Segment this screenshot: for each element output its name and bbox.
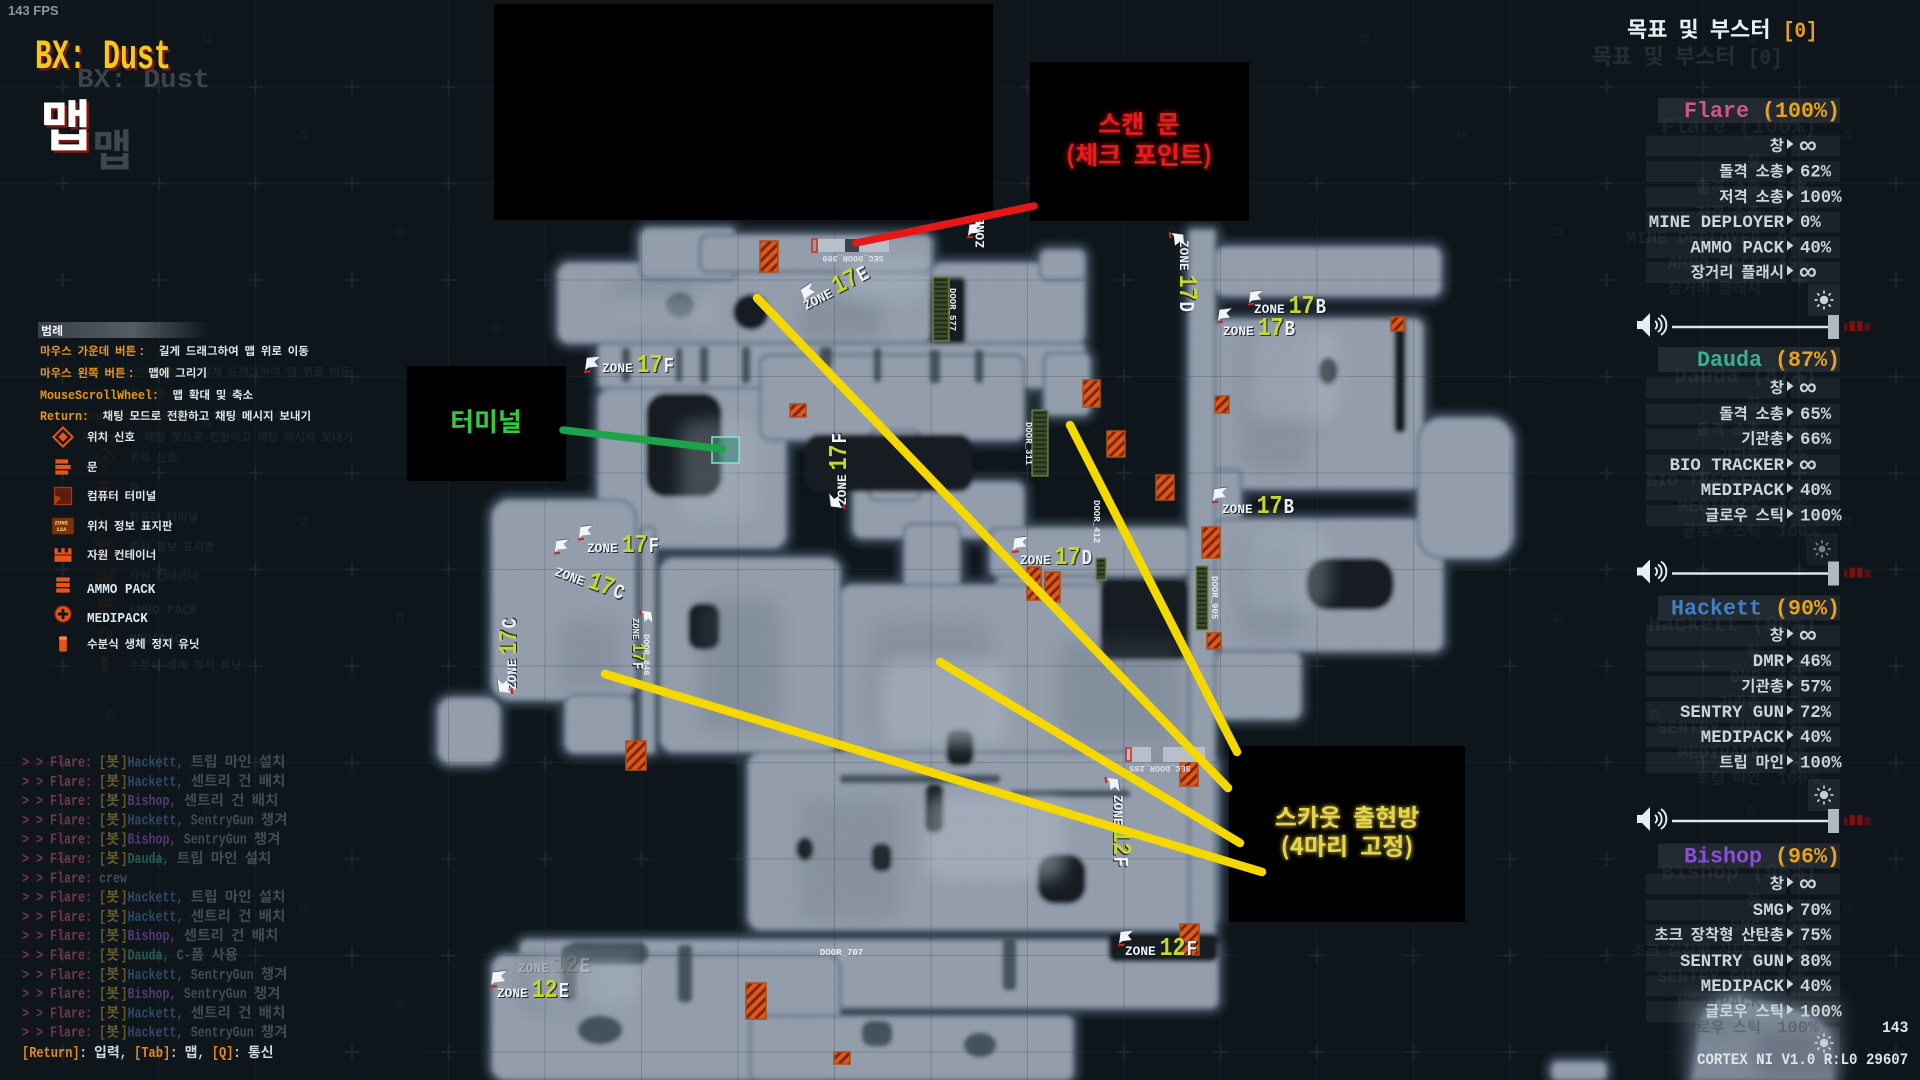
svg-text:Hackett: Hackett <box>128 813 177 829</box>
svg-text::: : <box>233 1046 247 1062</box>
svg-text:,: , <box>177 1006 184 1022</box>
svg-text:∞: ∞ <box>1799 131 1817 159</box>
svg-text:ZONE: ZONE <box>630 618 640 640</box>
svg-text:AMMO PACK: AMMO PACK <box>1690 239 1784 259</box>
svg-text:> > Flare:: > > Flare: <box>22 968 92 984</box>
svg-text:,: , <box>177 968 184 984</box>
svg-text:DOOR_311: DOOR_311 <box>1023 422 1033 466</box>
svg-text:> > Flare:: > > Flare: <box>22 891 92 907</box>
svg-text:> > Flare:: > > Flare: <box>22 929 92 945</box>
svg-text:Bishop: Bishop <box>128 987 170 1003</box>
svg-text:F: F <box>628 662 644 669</box>
svg-text:12A: 12A <box>98 547 109 554</box>
svg-text:F: F <box>664 356 674 379</box>
svg-text:F: F <box>1187 939 1197 962</box>
svg-text:[0]: [0] <box>1748 46 1783 71</box>
svg-text:> > Flare:: > > Flare: <box>22 794 92 810</box>
svg-text:]: ] <box>121 1026 128 1042</box>
svg-text:∞: ∞ <box>1799 373 1817 401</box>
svg-text:]: ] <box>121 968 128 984</box>
svg-text:B: B <box>1285 319 1296 342</box>
svg-text:Bishop: Bishop <box>128 794 170 810</box>
svg-text:E: E <box>559 981 569 1004</box>
svg-text:ZONE: ZONE <box>1110 795 1125 826</box>
svg-text:SENTRY GUN: SENTRY GUN <box>1680 952 1784 972</box>
svg-text:Hackett: Hackett <box>128 910 177 926</box>
svg-text:[: [ <box>99 794 106 810</box>
svg-text:> > Flare:: > > Flare: <box>22 949 92 965</box>
svg-text:,: , <box>177 910 184 926</box>
svg-text:70%: 70% <box>1800 901 1832 921</box>
svg-text:17: 17 <box>627 643 647 661</box>
svg-text:[: [ <box>99 910 106 926</box>
svg-text:AMMO PACK: AMMO PACK <box>87 583 156 598</box>
svg-text:[: [ <box>99 968 106 984</box>
svg-text:> > Flare:: > > Flare: <box>22 775 92 791</box>
svg-text:17: 17 <box>622 530 648 560</box>
svg-text::: : <box>170 387 177 402</box>
svg-text:62%: 62% <box>1800 163 1832 183</box>
svg-text:57%: 57% <box>1800 678 1832 698</box>
svg-text:Dauda: Dauda <box>128 852 163 868</box>
svg-text::: : <box>128 366 135 381</box>
svg-text:SentryGun: SentryGun <box>191 968 261 984</box>
svg-text:]: ] <box>121 929 128 945</box>
svg-text:40%: 40% <box>1800 977 1832 997</box>
svg-text:MEDIPACK: MEDIPACK <box>1701 481 1785 501</box>
svg-text:]: ] <box>121 891 128 907</box>
svg-text:ZONE: ZONE <box>97 540 111 547</box>
svg-text:∞: ∞ <box>1799 869 1817 897</box>
svg-text:]: ] <box>121 987 128 1003</box>
svg-text:F: F <box>830 433 853 443</box>
svg-text:[: [ <box>99 949 106 965</box>
svg-text:,: , <box>177 1026 184 1042</box>
svg-text:SentryGun: SentryGun <box>184 833 254 849</box>
svg-text:[: [ <box>99 775 106 791</box>
svg-text:CORTEX NI V1.0 R:L0 29607: CORTEX NI V1.0 R:L0 29607 <box>1697 1051 1908 1069</box>
svg-text:46%: 46% <box>1800 652 1832 672</box>
svg-text:SentryGun: SentryGun <box>191 1026 261 1042</box>
svg-text:]: ] <box>121 949 128 965</box>
svg-text:ZONE: ZONE <box>497 986 528 1001</box>
svg-text:D: D <box>1082 548 1092 571</box>
svg-text:[Q]: [Q] <box>212 1046 234 1062</box>
svg-text:DOOR_412: DOOR_412 <box>1091 500 1101 543</box>
svg-text:]: ] <box>121 910 128 926</box>
svg-text:Hackett: Hackett <box>128 1006 177 1022</box>
svg-text:DOOR_577: DOOR_577 <box>947 288 957 331</box>
svg-text:[0]: [0] <box>1783 19 1818 44</box>
svg-text:AMMO PACK: AMMO PACK <box>129 604 198 619</box>
svg-text:[: [ <box>99 891 106 907</box>
svg-text:C: C <box>500 618 523 628</box>
svg-text:BIO TRACKER: BIO TRACKER <box>1670 456 1785 476</box>
svg-text::: : <box>80 1046 87 1062</box>
svg-text:SEC_DOOR_300: SEC_DOOR_300 <box>822 253 883 263</box>
svg-text:SENTRY GUN: SENTRY GUN <box>1680 703 1784 723</box>
svg-text:ZONE: ZONE <box>1176 240 1191 271</box>
svg-text:80%: 80% <box>1800 952 1832 972</box>
svg-text::: : <box>180 365 187 380</box>
svg-text:17: 17 <box>637 350 663 380</box>
svg-text:[: [ <box>99 929 106 945</box>
svg-text:ZONE: ZONE <box>1020 553 1051 568</box>
svg-text:Bishop: Bishop <box>128 929 170 945</box>
svg-text:Hackett: Hackett <box>128 891 177 907</box>
svg-text:DOOR_905: DOOR_905 <box>1209 576 1219 619</box>
svg-text:SentryGun: SentryGun <box>184 987 254 1003</box>
svg-text:143 FPS: 143 FPS <box>8 3 59 18</box>
svg-text:,: , <box>177 756 184 772</box>
svg-text:F: F <box>1107 857 1130 867</box>
svg-text:,: , <box>170 833 177 849</box>
svg-text::: : <box>138 344 145 359</box>
svg-text:]: ] <box>121 775 128 791</box>
svg-text:Hackett: Hackett <box>128 1026 177 1042</box>
svg-text:∞: ∞ <box>1799 450 1817 478</box>
svg-text:DMR: DMR <box>1753 652 1785 672</box>
svg-text:Hackett: Hackett <box>128 756 177 772</box>
svg-text:MINE DEPLOYER: MINE DEPLOYER <box>1649 213 1785 233</box>
svg-text:17: 17 <box>1257 491 1283 521</box>
svg-text:]: ] <box>121 1006 128 1022</box>
svg-text:SentryGun: SentryGun <box>191 813 261 829</box>
svg-text:40%: 40% <box>1800 728 1832 748</box>
svg-text:> > Flare:: > > Flare: <box>22 833 92 849</box>
svg-text:75%: 75% <box>1800 926 1832 946</box>
svg-text:ZONE: ZONE <box>1222 502 1253 517</box>
svg-text:65%: 65% <box>1800 405 1832 425</box>
svg-text:17: 17 <box>1289 291 1315 321</box>
svg-text:ZONE: ZONE <box>1125 944 1156 959</box>
svg-text:100%: 100% <box>1800 754 1842 774</box>
svg-text:[: [ <box>99 1026 106 1042</box>
svg-text:B: B <box>1316 297 1327 320</box>
svg-text:0%: 0% <box>1800 213 1821 233</box>
svg-text:[: [ <box>99 987 106 1003</box>
svg-text:[Return]: [Return] <box>22 1046 80 1062</box>
svg-text:> > Flare:: > > Flare: <box>22 987 92 1003</box>
svg-text:12A: 12A <box>56 526 67 533</box>
svg-text:[: [ <box>99 833 106 849</box>
svg-text:> > Flare:: > > Flare: <box>22 1006 92 1022</box>
svg-text:]: ] <box>121 756 128 772</box>
svg-text:143: 143 <box>1882 1019 1908 1037</box>
svg-text:,: , <box>170 794 177 810</box>
svg-text:MEDIPACK: MEDIPACK <box>1701 728 1785 748</box>
svg-text::: : <box>170 1046 184 1062</box>
svg-text:,: , <box>163 949 170 965</box>
svg-text:> > Flare:: > > Flare: <box>22 871 92 887</box>
svg-text:MouseScrollWheel:: MouseScrollWheel: <box>40 389 159 403</box>
svg-text:,: , <box>170 929 177 945</box>
svg-text:ZONE: ZONE <box>835 474 850 505</box>
svg-text:> > Flare:: > > Flare: <box>22 813 92 829</box>
svg-text:72%: 72% <box>1800 703 1832 723</box>
svg-text:]: ] <box>121 794 128 810</box>
svg-text:Dauda: Dauda <box>128 949 163 965</box>
svg-text:∞: ∞ <box>1799 621 1817 649</box>
svg-text:]: ] <box>121 852 128 868</box>
svg-text:DOOR_707: DOOR_707 <box>820 948 863 958</box>
svg-text:ZONE: ZONE <box>518 961 549 976</box>
svg-text:ZONE: ZONE <box>505 659 520 690</box>
svg-text:Bishop: Bishop <box>128 833 170 849</box>
svg-text:Hackett: Hackett <box>128 775 177 791</box>
svg-text:]: ] <box>121 813 128 829</box>
svg-text:,: , <box>197 1046 211 1062</box>
svg-text:17: 17 <box>494 629 524 655</box>
svg-text:40%: 40% <box>1800 481 1832 501</box>
svg-text:Return:: Return: <box>82 431 131 445</box>
svg-text:Hackett: Hackett <box>128 968 177 984</box>
svg-text:40%: 40% <box>1800 239 1832 259</box>
svg-text:> > Flare:: > > Flare: <box>22 1026 92 1042</box>
svg-text:,: , <box>120 1046 134 1062</box>
svg-text:,: , <box>163 852 170 868</box>
svg-text:17: 17 <box>1258 313 1284 343</box>
svg-text:66%: 66% <box>1800 430 1832 450</box>
svg-text:17: 17 <box>1055 542 1081 572</box>
svg-text:ZONE: ZONE <box>587 541 618 556</box>
svg-text:MEDIPACK: MEDIPACK <box>129 633 191 648</box>
svg-text:[: [ <box>99 1006 106 1022</box>
svg-text:[: [ <box>99 756 106 772</box>
svg-text:17: 17 <box>824 444 854 470</box>
svg-text:100%: 100% <box>1800 1003 1842 1023</box>
svg-text:∞: ∞ <box>1799 258 1817 286</box>
svg-text:> > Flare:: > > Flare: <box>22 910 92 926</box>
svg-text:,: , <box>170 987 177 1003</box>
svg-text:D: D <box>1173 302 1196 312</box>
svg-text:E: E <box>580 956 590 979</box>
svg-text:ZONE: ZONE <box>602 361 633 376</box>
svg-text:crew: crew <box>99 871 127 887</box>
svg-text:,: , <box>177 775 184 791</box>
svg-text:ZONE: ZONE <box>55 519 69 526</box>
svg-text:> > Flare:: > > Flare: <box>22 852 92 868</box>
svg-text:MEDIPACK: MEDIPACK <box>1701 977 1785 997</box>
svg-text:SMG: SMG <box>1753 901 1784 921</box>
svg-text:C-: C- <box>177 949 191 965</box>
svg-text:B: B <box>1284 497 1295 520</box>
svg-text:100%: 100% <box>1800 188 1842 208</box>
svg-text:12: 12 <box>532 975 558 1005</box>
svg-text:BX: Dust: BX: Dust <box>35 33 171 81</box>
svg-text:[: [ <box>99 813 106 829</box>
svg-text:SEC_DOOR_285: SEC_DOOR_285 <box>1129 763 1190 773</box>
svg-text:,: , <box>177 891 184 907</box>
svg-text:12: 12 <box>1160 933 1186 963</box>
svg-text:F: F <box>649 536 659 559</box>
svg-text:[Tab]: [Tab] <box>134 1046 170 1062</box>
svg-text:[: [ <box>99 852 106 868</box>
svg-text:,: , <box>177 813 184 829</box>
svg-text:100%: 100% <box>1800 507 1842 527</box>
svg-text:]: ] <box>121 833 128 849</box>
svg-text:> > Flare:: > > Flare: <box>22 756 92 772</box>
svg-text:MouseScrollWheel:: MouseScrollWheel: <box>82 410 201 424</box>
svg-text:ZONE: ZONE <box>1223 324 1254 339</box>
svg-text:17: 17 <box>1172 275 1202 301</box>
